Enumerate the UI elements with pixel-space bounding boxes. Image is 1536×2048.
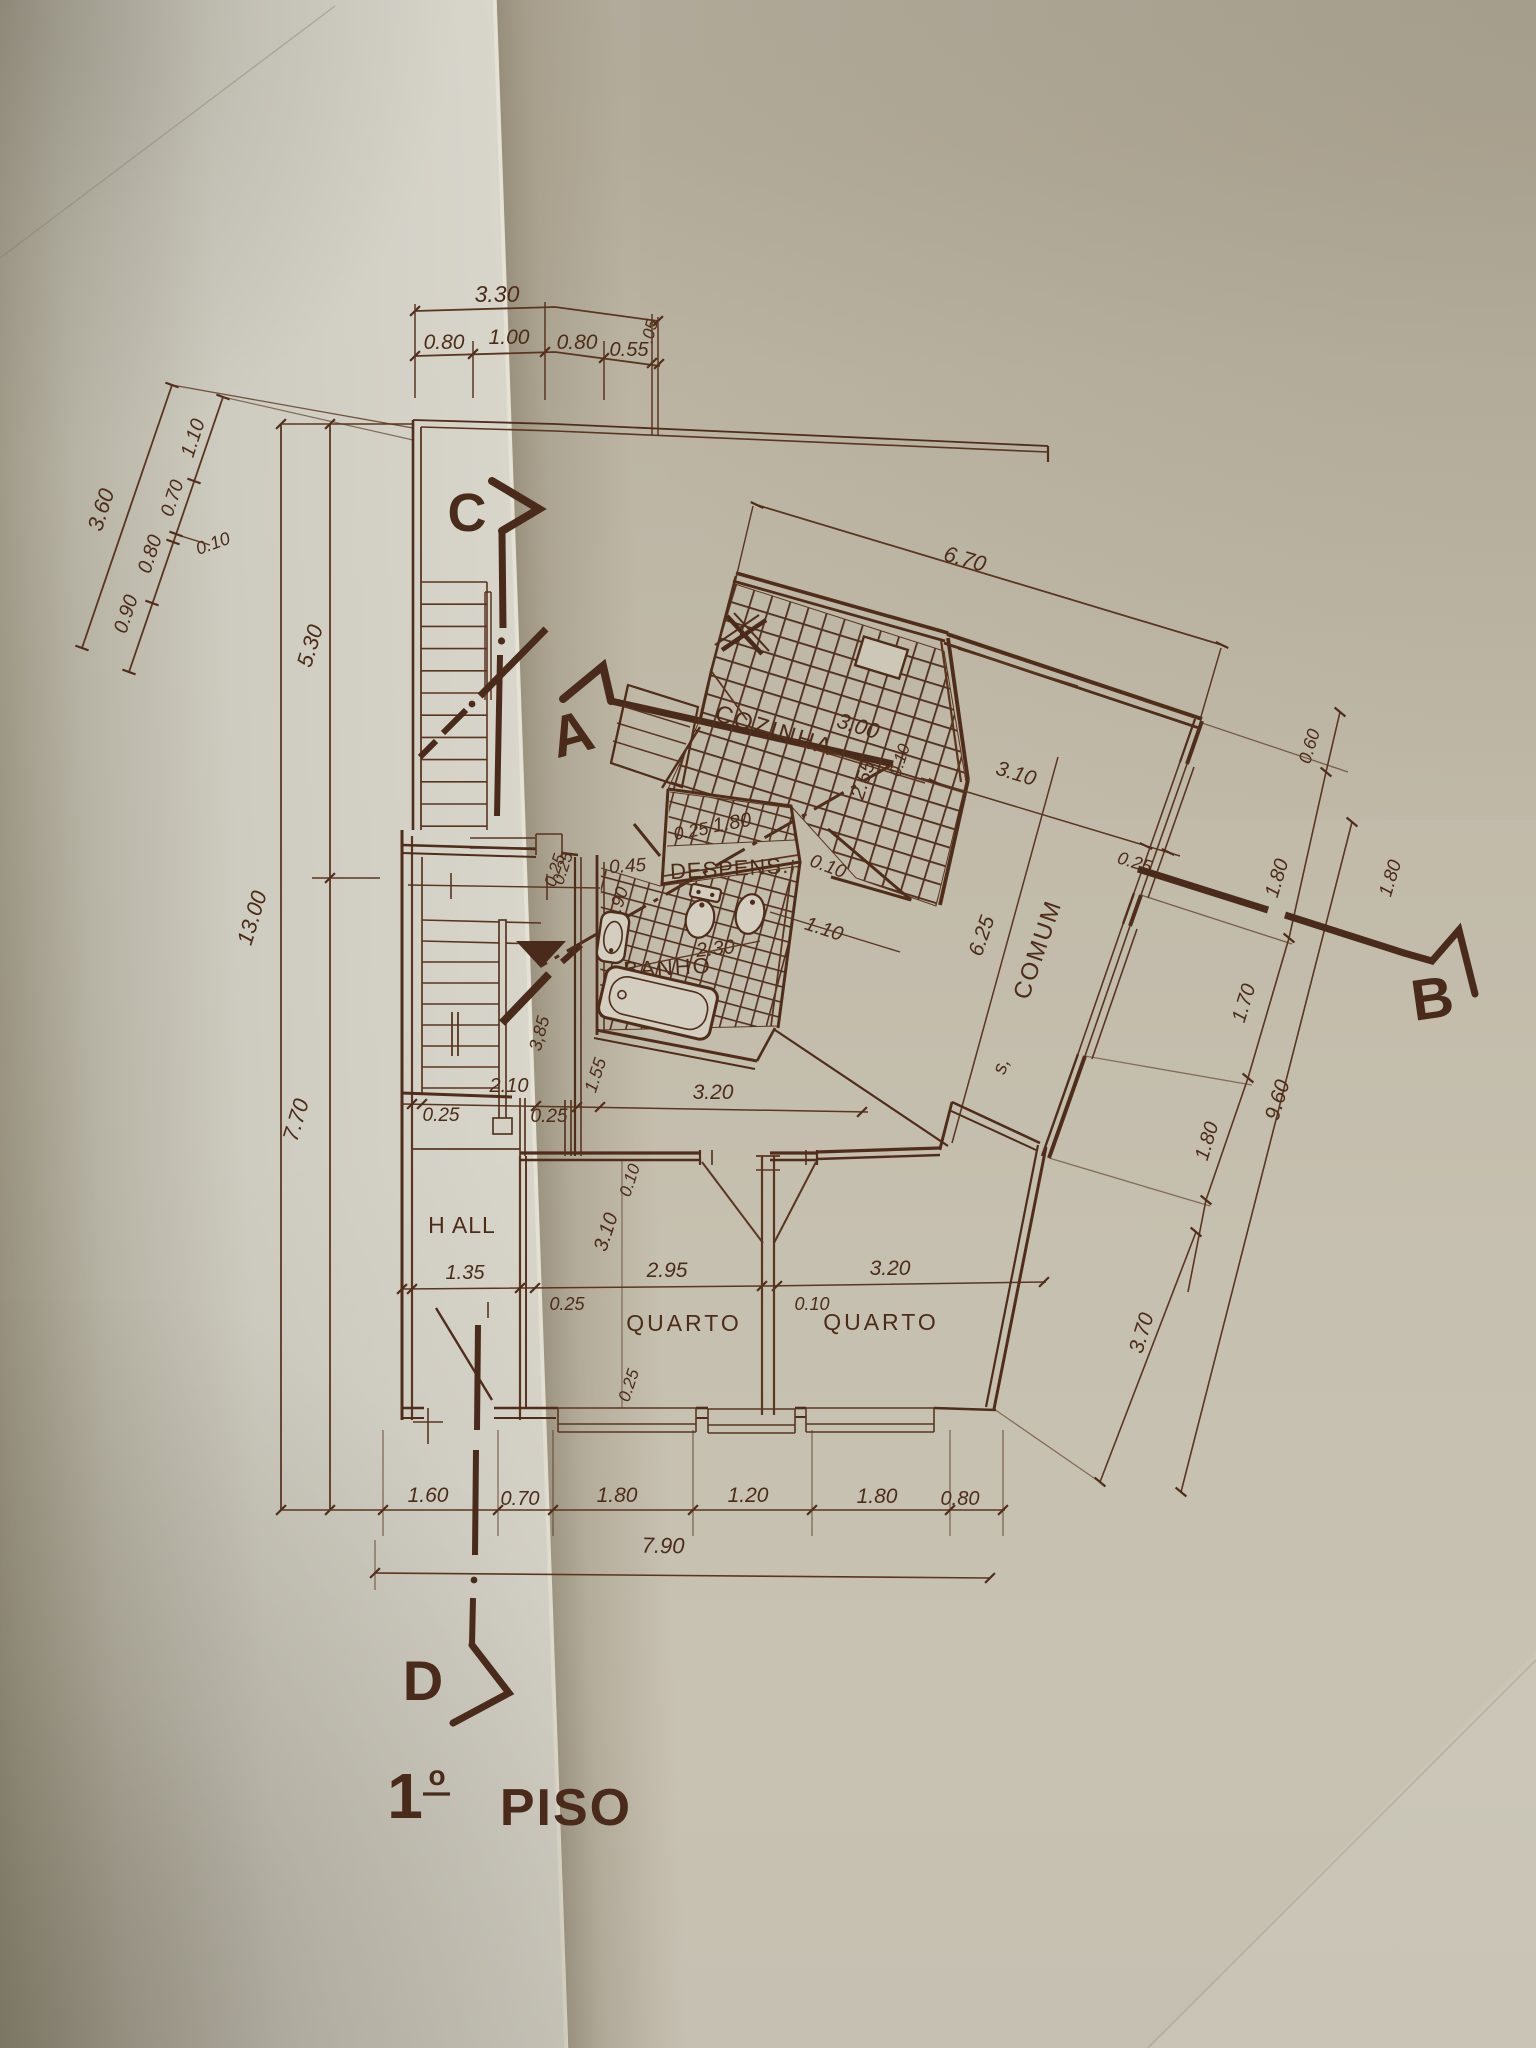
svg-text:3.30: 3.30	[475, 281, 520, 307]
svg-text:1: 1	[387, 1760, 423, 1832]
svg-text:QUARTO: QUARTO	[626, 1310, 742, 1336]
svg-text:3.20: 3.20	[870, 1257, 911, 1280]
svg-text:B: B	[1407, 964, 1458, 1034]
svg-text:1.80: 1.80	[857, 1485, 898, 1508]
svg-text:0.80: 0.80	[557, 331, 598, 354]
svg-text:0.70: 0.70	[501, 1488, 540, 1510]
svg-text:D: D	[403, 1649, 443, 1712]
svg-text:7.90: 7.90	[642, 1533, 686, 1559]
svg-text:1.80: 1.80	[597, 1484, 638, 1507]
svg-text:2.10: 2.10	[489, 1075, 529, 1097]
svg-text:1.60: 1.60	[408, 1484, 449, 1507]
svg-text:3.20: 3.20	[693, 1081, 734, 1104]
svg-text:1.20: 1.20	[728, 1484, 769, 1507]
svg-text:0.25: 0.25	[423, 1105, 460, 1126]
svg-text:C: C	[448, 483, 487, 543]
svg-text:2.30: 2.30	[694, 936, 736, 962]
svg-text:QUARTO: QUARTO	[823, 1309, 939, 1335]
svg-text:1.00: 1.00	[489, 326, 530, 349]
svg-text:0.80: 0.80	[424, 331, 465, 354]
svg-text:2.95: 2.95	[646, 1259, 688, 1282]
svg-text:PISO: PISO	[500, 1779, 632, 1837]
svg-text:0.25: 0.25	[549, 1294, 585, 1314]
svg-text:o: o	[428, 1760, 445, 1791]
svg-text:0.25: 0.25	[531, 1106, 568, 1127]
svg-text:0.80: 0.80	[941, 1488, 980, 1510]
svg-text:1.35: 1.35	[446, 1262, 486, 1284]
svg-text:H ALL: H ALL	[428, 1212, 496, 1238]
